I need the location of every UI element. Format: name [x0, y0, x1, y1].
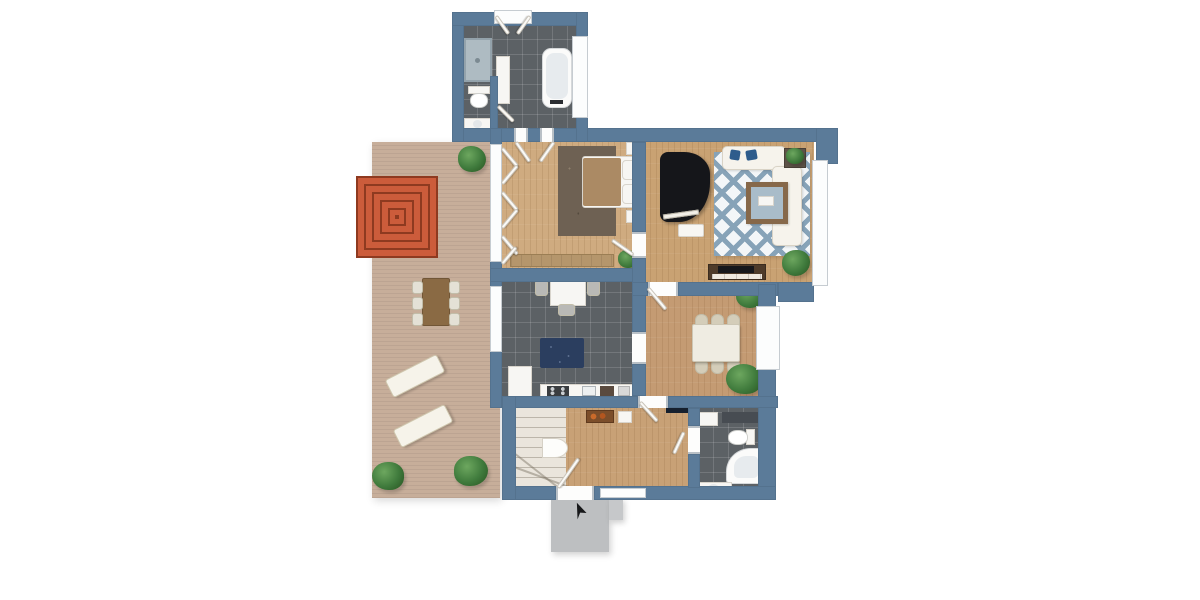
entrance-step: [609, 498, 623, 520]
coffee-machine: [600, 386, 614, 396]
picture-frame: [618, 411, 632, 423]
bedroom-bench: [510, 254, 614, 267]
dining-chair: [695, 362, 708, 374]
toilet-bowl: [728, 430, 748, 445]
wall-right-top-corner: [816, 128, 838, 164]
doormat-dark: [666, 408, 688, 413]
corner-bathtub-basin: [734, 456, 758, 478]
wall-right-chunk: [778, 282, 814, 302]
outdoor-chair: [449, 297, 460, 310]
sink: [582, 386, 596, 396]
wall-hall-top-a: [502, 396, 638, 408]
piano-bench: [678, 224, 704, 237]
wall-mid-vertical-3: [632, 364, 646, 396]
bathtub-basin: [546, 53, 568, 99]
coffee-table-tray: [758, 196, 774, 206]
washbasin-bowl: [473, 120, 482, 128]
wall-hall-left: [502, 396, 516, 500]
potted-plant: [454, 456, 488, 486]
wall-bath2-divider-a: [688, 408, 700, 426]
wall-top-main: [452, 128, 838, 142]
wall-wing-left: [452, 12, 464, 142]
wall-wing-right-bottom: [576, 116, 588, 142]
dark-mat: [722, 412, 760, 423]
sofa-pillow: [729, 149, 740, 160]
potted-plant: [372, 462, 404, 490]
bedroom-terrace-window: [490, 144, 502, 262]
sofa-pillow: [745, 149, 758, 161]
outdoor-table: [422, 278, 450, 326]
potted-plant: [458, 146, 486, 172]
terrace-red-rug: [356, 176, 438, 258]
bathtub-fixture: [550, 100, 563, 104]
front-door-opening: [556, 486, 594, 500]
floor-plan-canvas: [0, 0, 1200, 600]
wall-mid-vertical-1: [632, 142, 646, 232]
hall-bottom-window: [600, 488, 646, 498]
tv-console-doors: [712, 274, 762, 279]
outdoor-chair: [412, 281, 423, 294]
wall-bedroom-bottom: [490, 268, 646, 282]
doorway-bath-to-landing-a: [514, 128, 528, 142]
doorway-bath-to-landing-b: [540, 128, 554, 142]
wall-hall-top-b: [668, 396, 778, 408]
outdoor-chair: [412, 297, 423, 310]
kitchen-chair: [587, 280, 600, 296]
toilet-bowl: [470, 93, 488, 108]
console-table: [586, 410, 614, 423]
kitchen-terrace-window: [490, 286, 502, 352]
wall-bath2-divider-b: [688, 454, 700, 488]
kitchen-chair: [535, 280, 548, 296]
entry-arrow-icon: [570, 502, 588, 520]
side-table-plant: [786, 148, 804, 164]
doorway-kitchen-dining: [632, 332, 646, 364]
bathroom-shelf: [698, 412, 718, 426]
kitchen-chair: [558, 304, 575, 316]
shower-drain: [475, 58, 480, 63]
tv-screen: [718, 266, 754, 273]
doorway-bedroom-living: [632, 232, 646, 258]
wall-living-bottom-left: [632, 282, 648, 296]
bed-blanket: [583, 158, 621, 206]
outdoor-chair: [449, 313, 460, 326]
wing-right-window: [572, 36, 588, 118]
staircase-newel: [542, 438, 568, 458]
tall-cabinet: [496, 56, 510, 104]
dining-chair: [711, 362, 724, 374]
outdoor-chair: [449, 281, 460, 294]
dining-right-window: [756, 306, 780, 370]
small-appliance: [618, 386, 630, 396]
outdoor-chair: [412, 313, 423, 326]
kitchen-navy-rug: [540, 338, 584, 368]
doorway-hall-bathroom: [688, 426, 700, 454]
stove: [547, 386, 569, 396]
dining-table: [692, 324, 740, 362]
living-right-window: [812, 160, 828, 286]
